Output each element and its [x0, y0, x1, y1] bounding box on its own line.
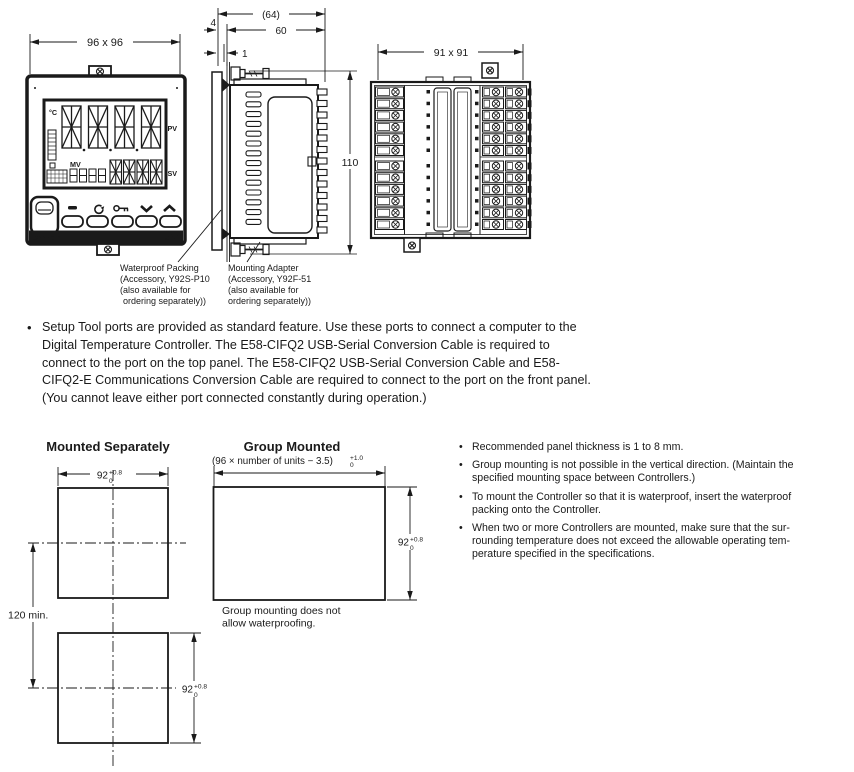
waterproof-packing-bottom — [222, 228, 230, 240]
side-total-depth-dim: (64) — [262, 10, 280, 21]
bullet-marker: • — [459, 441, 472, 454]
note-line: packing onto the Controller. — [472, 504, 791, 517]
note-line: perature specified in the specifications… — [472, 548, 790, 561]
front-size-dim: 96 x 96 — [87, 37, 123, 49]
mounting-adapter-top — [231, 67, 306, 85]
note-line: When two or more Controllers are mounted… — [472, 522, 790, 535]
vertical-pitch-dim: 120 min. — [8, 610, 48, 622]
setup-port-cover — [31, 197, 58, 234]
setup-note-line: connect to the port on the top panel. Th… — [42, 355, 591, 373]
side-view: (64) 60 4 1 — [178, 6, 365, 262]
note-line: Recommended panel thickness is 1 to 8 mm… — [472, 441, 683, 454]
datasheet-dimensions-page: 96 x 96 °C PV — [0, 0, 854, 772]
side-depth-dim: 60 — [275, 26, 287, 37]
group-mounted-diagram: Group Mounted (96 × number of units − 3.… — [212, 439, 430, 630]
model-label: E5AC — [160, 233, 182, 242]
note-item: • Group mounting is not possible in the … — [459, 459, 854, 485]
front-view: 96 x 96 °C PV — [27, 34, 185, 255]
svg-text:ordering separately)): ordering separately)) — [228, 296, 311, 306]
bullet-marker: • — [459, 459, 472, 485]
note-line: Group mounting is not possible in the ve… — [472, 459, 794, 472]
svg-text:+0.8: +0.8 — [109, 470, 122, 477]
group-mounted-title: Group Mounted — [244, 439, 341, 454]
mounting-notes-list: • Recommended panel thickness is 1 to 8 … — [459, 441, 854, 567]
svg-text:0: 0 — [410, 545, 414, 552]
bullet-marker: • — [459, 491, 472, 517]
mounting-adapter-label: Mounting Adapter — [228, 263, 299, 273]
mounted-separately-diagram: Mounted Separately 92 +0.8 0 120 min. 92… — [5, 439, 214, 768]
note-line: To mount the Controller so that it is wa… — [472, 491, 791, 504]
sv-label: SV — [168, 169, 178, 178]
svg-text:(96 × number of units − 3.5): (96 × number of units − 3.5) — [212, 456, 333, 467]
svg-text:0: 0 — [109, 478, 113, 485]
setup-note-line: CIFQ2-E Communications Conversion Cable … — [42, 372, 591, 390]
up-button — [160, 216, 181, 227]
svg-text:(Accessory, Y92F-51: (Accessory, Y92F-51 — [228, 274, 311, 284]
side-clearance-dim: 1 — [242, 49, 248, 60]
svg-text:+1.0: +1.0 — [350, 455, 363, 462]
accessory-labels: Waterproof Packing (Accessory, Y92S-P10 … — [120, 263, 311, 306]
note-line: specified mounting space between Control… — [472, 472, 794, 485]
bullet-marker: • — [459, 522, 472, 562]
note-item: • Recommended panel thickness is 1 to 8 … — [459, 441, 854, 454]
note-item: • When two or more Controllers are mount… — [459, 522, 854, 562]
back-size-dim: 91 x 91 — [434, 47, 469, 59]
mounting-adapter-bottom — [231, 238, 306, 256]
waterproof-packing-top — [222, 78, 230, 92]
mode-button — [87, 216, 108, 227]
pf-key-icon — [68, 206, 77, 210]
setup-note-line: Digital Temperature Controller. The E58-… — [42, 337, 591, 355]
group-note: Group mounting does not — [222, 605, 341, 617]
waterproof-packing-label: Waterproof Packing — [120, 263, 199, 273]
note-line: rounding temperature does not exceed the… — [472, 535, 790, 548]
setup-note-line: Setup Tool ports are provided as standar… — [42, 319, 591, 337]
level-button — [112, 216, 133, 227]
svg-text:0: 0 — [194, 692, 198, 699]
side-bezel-dim: 4 — [210, 18, 216, 29]
side-height-dim: 110 — [342, 157, 359, 169]
svg-text:allow waterproofing.: allow waterproofing. — [222, 618, 315, 630]
group-width-formula: (96 × number of units − 3.5) +1.0 0 — [212, 455, 363, 469]
mv-label: MV — [70, 160, 81, 169]
setup-note-line: (You cannot leave either port connected … — [42, 390, 591, 408]
bezel-profile — [212, 72, 222, 250]
setup-tool-note: • Setup Tool ports are provided as stand… — [27, 319, 591, 408]
case-body — [230, 85, 318, 238]
svg-text:92: 92 — [182, 685, 194, 696]
group-panel-cutout — [214, 487, 386, 600]
svg-text:92: 92 — [97, 471, 109, 482]
front-display: °C PV MV SV — [44, 100, 177, 188]
svg-text:(also available for: (also available for — [120, 285, 191, 295]
svg-text:92: 92 — [398, 538, 410, 549]
mounting-adapter-leader — [247, 242, 260, 262]
svg-text:+0.8: +0.8 — [410, 537, 423, 544]
svg-text:(Accessory, Y92S-P10: (Accessory, Y92S-P10 — [120, 274, 210, 284]
mounted-separately-title: Mounted Separately — [46, 439, 170, 454]
brand-logo: omron — [33, 232, 61, 242]
svg-text:0: 0 — [350, 462, 354, 469]
svg-text:+0.8: +0.8 — [194, 684, 207, 691]
pf-key-button — [62, 216, 83, 227]
pv-label: PV — [168, 124, 178, 133]
back-view: 91 x 91 — [371, 44, 532, 252]
down-button — [136, 216, 157, 227]
bullet-marker: • — [27, 319, 42, 408]
note-item: • To mount the Controller so that it is … — [459, 491, 854, 517]
temp-unit-indicator: °C — [49, 108, 57, 117]
svg-text:ordering separately)): ordering separately)) — [123, 296, 206, 306]
svg-text:(also available for: (also available for — [228, 285, 299, 295]
